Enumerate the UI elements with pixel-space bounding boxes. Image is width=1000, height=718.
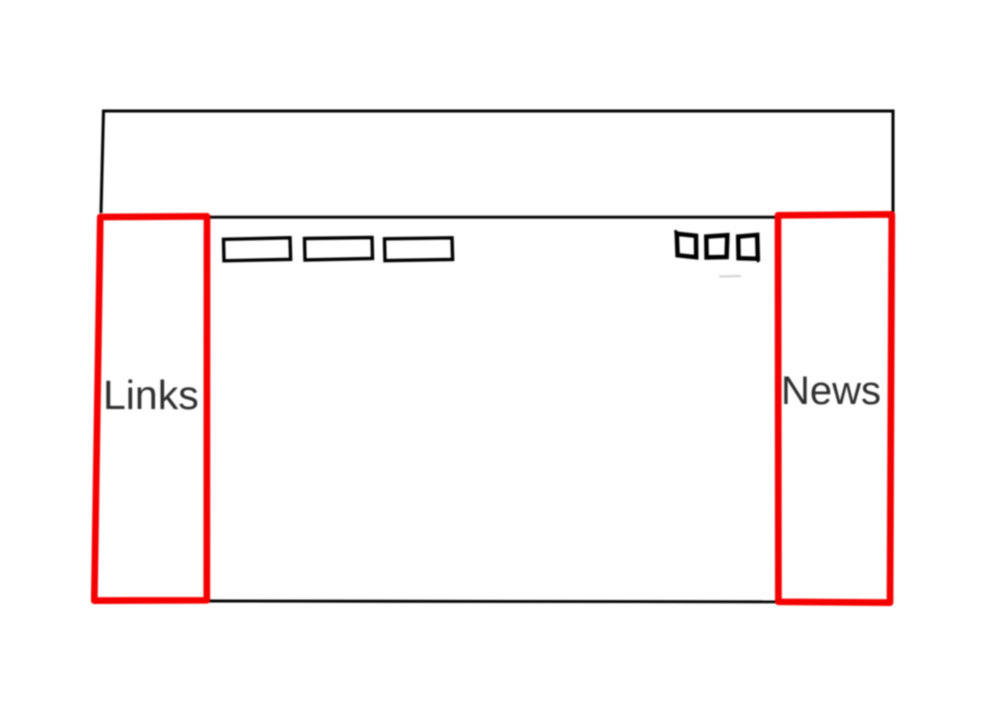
svg-text:News: News	[781, 369, 881, 413]
svg-text:Links: Links	[103, 372, 199, 418]
